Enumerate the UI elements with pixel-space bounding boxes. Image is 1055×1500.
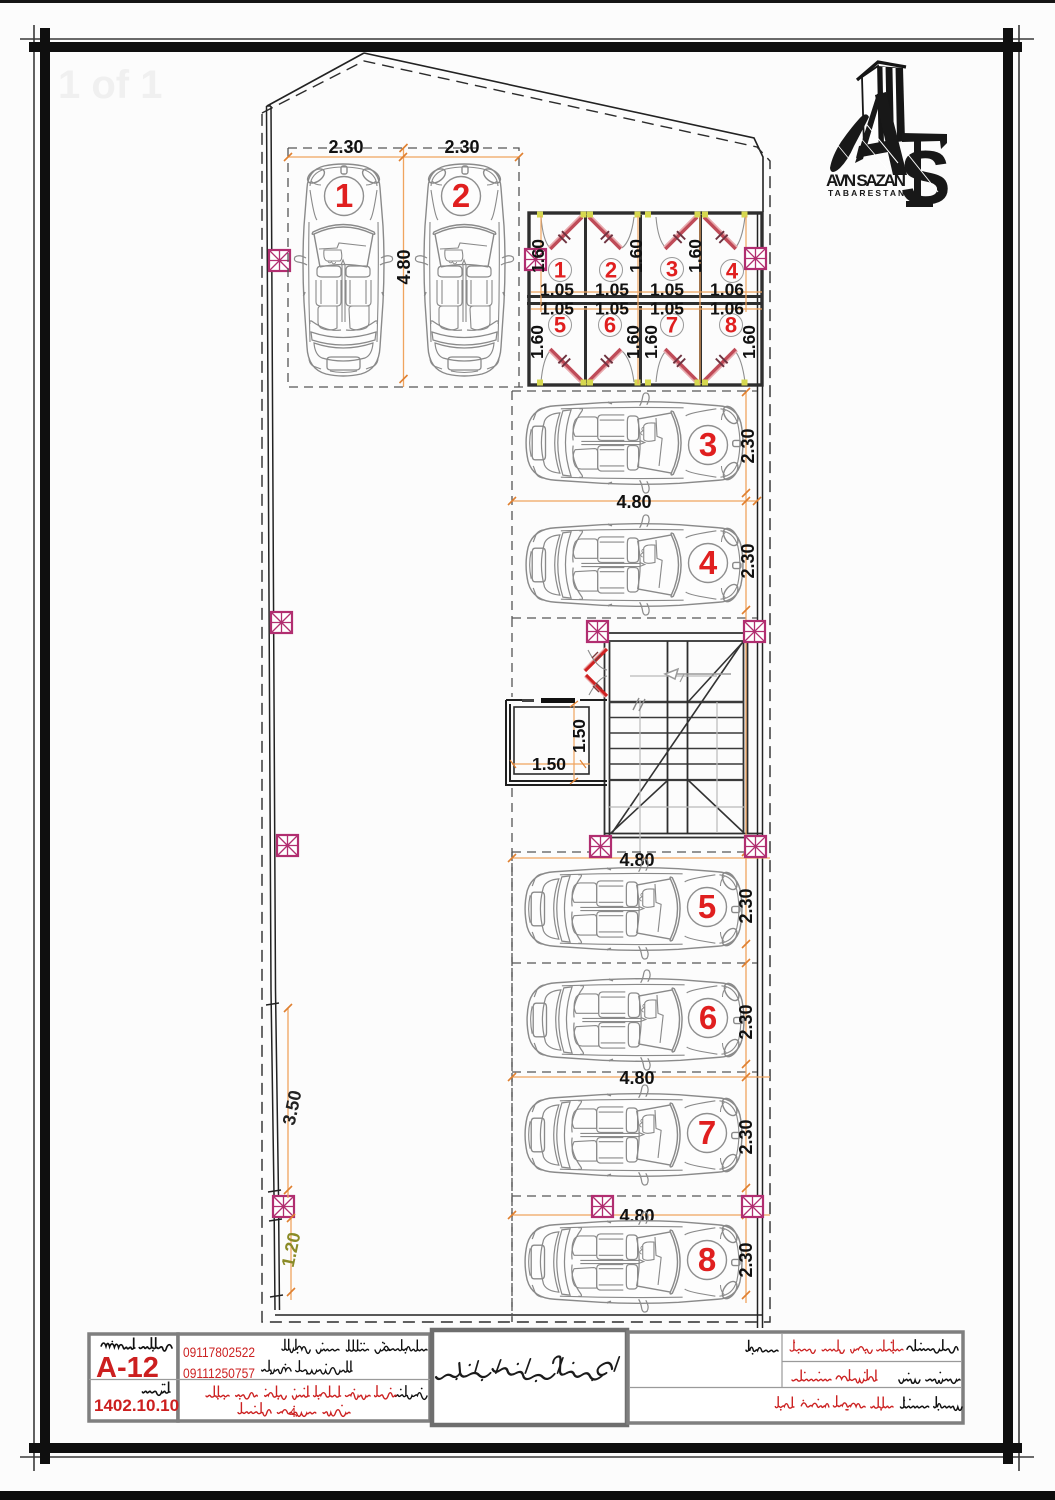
svg-text:3: 3 [699, 426, 717, 463]
svg-text:09117802522: 09117802522 [183, 1344, 255, 1360]
svg-text:2.30: 2.30 [328, 137, 363, 157]
svg-text:1.60: 1.60 [739, 325, 759, 359]
svg-text:6: 6 [699, 999, 717, 1036]
svg-text:1.05: 1.05 [595, 280, 629, 300]
svg-text:4: 4 [699, 544, 718, 581]
svg-text:TABARESTAN: TABARESTAN [828, 188, 906, 198]
svg-text:1.60: 1.60 [623, 325, 643, 359]
svg-text:1.60: 1.60 [528, 239, 548, 273]
svg-text:4.80: 4.80 [394, 249, 414, 284]
svg-text:1.50: 1.50 [569, 719, 589, 753]
svg-text:1 of 1: 1 of 1 [58, 63, 162, 107]
svg-text:3: 3 [666, 257, 678, 282]
svg-text:1.05: 1.05 [540, 299, 574, 319]
svg-text:1: 1 [335, 177, 353, 214]
svg-text:1.60: 1.60 [626, 239, 646, 273]
svg-text:2.30: 2.30 [738, 543, 758, 578]
svg-text:1.05: 1.05 [650, 299, 684, 319]
svg-text:1.50: 1.50 [532, 754, 566, 774]
svg-text:1.60: 1.60 [527, 325, 547, 359]
svg-text:4.80: 4.80 [616, 492, 651, 512]
svg-text:1.05: 1.05 [650, 280, 684, 300]
svg-text:2: 2 [452, 177, 470, 214]
svg-text:1.05: 1.05 [595, 299, 629, 319]
svg-text:4.80: 4.80 [619, 1068, 654, 1088]
svg-text:2.30: 2.30 [738, 428, 758, 463]
svg-text:1.06: 1.06 [710, 280, 744, 300]
svg-text:2.30: 2.30 [444, 137, 479, 157]
svg-text:1.05: 1.05 [540, 280, 574, 300]
svg-text:1.60: 1.60 [641, 325, 661, 359]
svg-text:1.06: 1.06 [710, 299, 744, 319]
svg-text:A-12: A-12 [96, 1352, 159, 1384]
svg-text:2.30: 2.30 [736, 1004, 756, 1039]
svg-text:1.60: 1.60 [685, 239, 705, 273]
svg-text:2.30: 2.30 [736, 888, 756, 923]
svg-text:09111250757: 09111250757 [183, 1365, 255, 1381]
svg-text:2.30: 2.30 [736, 1119, 756, 1154]
svg-text:7: 7 [698, 1114, 716, 1151]
svg-text:2.30: 2.30 [736, 1242, 756, 1277]
svg-text:8: 8 [698, 1241, 716, 1278]
svg-text:S: S [900, 136, 951, 221]
svg-text:5: 5 [698, 888, 716, 925]
svg-text:1402.10.10: 1402.10.10 [94, 1396, 179, 1415]
